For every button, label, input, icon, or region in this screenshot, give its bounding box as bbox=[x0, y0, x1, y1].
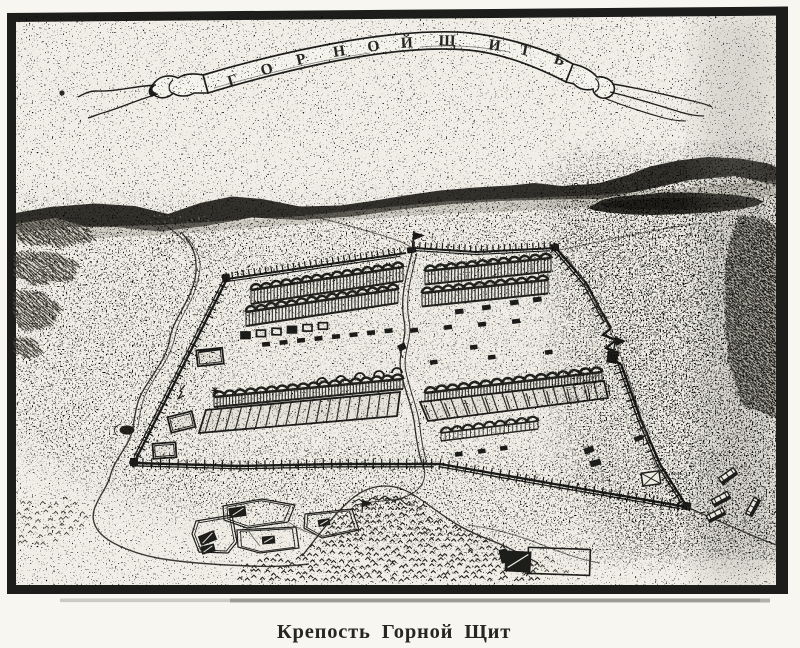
svg-text:Крепость Горной Щит: Крепость Горной Щит bbox=[277, 621, 511, 643]
